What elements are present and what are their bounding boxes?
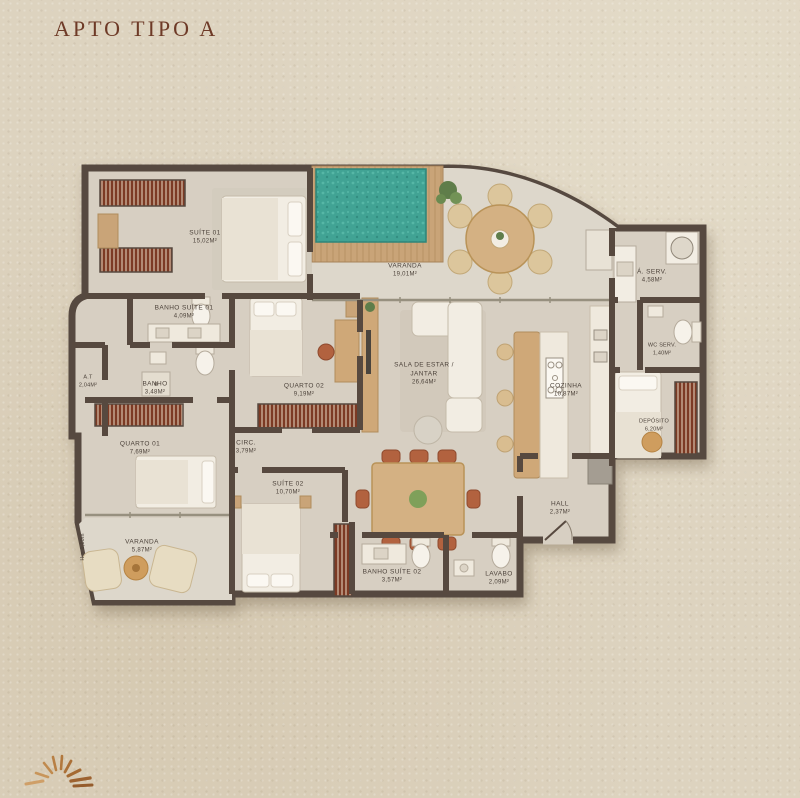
floor-plan [0, 0, 800, 798]
floor-plan-page: APTO TIPO A [0, 0, 800, 798]
sunburst-icon [22, 740, 94, 792]
sofa [400, 302, 486, 444]
pool [316, 169, 426, 242]
tv-panel [362, 298, 378, 432]
